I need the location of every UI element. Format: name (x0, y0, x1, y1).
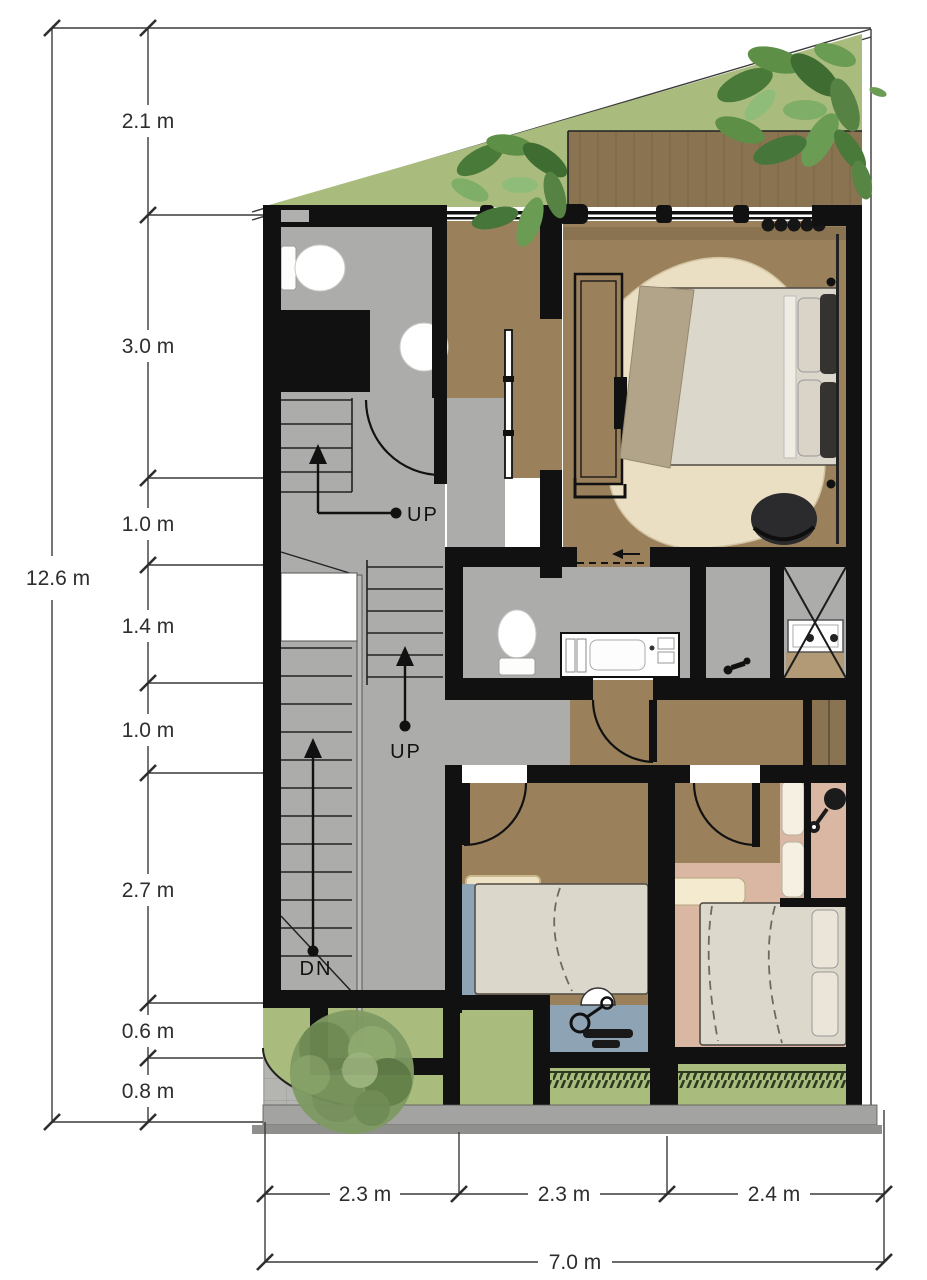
master-sheet-fold (784, 296, 796, 458)
shaft-wood (786, 652, 844, 678)
jamb-1 (540, 311, 562, 319)
leaf (502, 177, 538, 193)
pillow-light-2 (798, 380, 822, 456)
floor-plan-page: UP UP DN (0, 0, 927, 1280)
cushion-1 (782, 780, 804, 835)
wall-master-bottom-right (650, 547, 846, 567)
closet-knob-2 (827, 480, 836, 489)
desk-chair-icon (592, 1040, 620, 1048)
leaf (783, 100, 827, 120)
wall-bed4-top-a (675, 765, 690, 783)
wall-right-bottom-stub (846, 1047, 862, 1105)
door-master-hinge-2 (503, 430, 514, 436)
dim-left-seg-0: 2.1 m (122, 110, 175, 133)
dim-bottom-seg-2: 2.4 m (748, 1183, 801, 1206)
bed3 (475, 884, 648, 994)
door-bath1-leaf (434, 398, 447, 484)
door-bed4-leaf (752, 783, 760, 847)
dim-left-seg-4: 1.0 m (122, 719, 175, 742)
wall-bath2-bottom-left (445, 678, 593, 700)
window-post-3 (656, 205, 672, 223)
wall-left (263, 205, 281, 1008)
wall-wardrobe-bottom (780, 898, 846, 907)
door-master-hinge-1 (503, 376, 514, 382)
closet-front-line (836, 234, 839, 544)
desk-icon (583, 1029, 633, 1038)
doorway-floor (512, 317, 562, 478)
dim-left-seg-5: 2.7 m (122, 879, 175, 902)
wall-bed3-top-b (527, 765, 660, 783)
wall-closet-column (803, 690, 812, 775)
pillow-dark-2 (820, 382, 838, 458)
bed4-pillow-2 (812, 972, 838, 1036)
door-master-leaf (505, 330, 512, 478)
vanity-basin (590, 640, 645, 670)
wall-bath2-bottom-right (653, 678, 846, 700)
up-label-second: UP (390, 741, 422, 763)
hedge-hatch (550, 1072, 846, 1088)
wall-top-notch (281, 210, 309, 222)
wall-master-left-upper (540, 205, 562, 317)
bed4-pillow-1 (812, 910, 838, 968)
dim-left-seg-6: 0.6 m (122, 1020, 175, 1043)
hallway-floor (570, 700, 803, 765)
laundry-floor (706, 567, 770, 678)
bath2-door-gap-floor (593, 680, 653, 700)
dim-bottom-seg-0: 2.3 m (339, 1183, 392, 1206)
wall-master-bottom-left (445, 547, 577, 567)
floor-plan-canvas: UP UP DN (0, 0, 927, 1280)
toilet2-bowl (498, 610, 536, 658)
bedside-table (667, 878, 745, 905)
up-label-first: UP (407, 504, 439, 526)
wall-laundry-right (770, 567, 784, 678)
wall-bed4-bottom (675, 1047, 846, 1064)
wall-stairhall-bottom (263, 990, 447, 1008)
dim-left-total-label: 12.6 m (26, 567, 90, 590)
entry-garden-grass (460, 1005, 533, 1113)
closet-knob-1 (827, 278, 836, 287)
stair-void (281, 573, 357, 641)
down-label: DN (300, 958, 333, 980)
wall-nook-right-post (650, 1052, 678, 1112)
toilet2-tank (499, 658, 535, 675)
door-bath2-leaf (649, 700, 657, 762)
vanity-faucet (650, 646, 655, 651)
wall-right (846, 205, 862, 1068)
door-bed3-leaf (458, 783, 470, 845)
dim-left-seg-1: 3.0 m (122, 335, 175, 358)
pillow-dark-1 (820, 294, 838, 374)
stair-hall-floor (281, 398, 445, 990)
toilet1-bowl (295, 245, 345, 291)
hall-lower-gray (445, 700, 570, 765)
stair-handrail (357, 575, 362, 1045)
shower-block (281, 310, 370, 392)
wall-bath1-right (432, 224, 447, 398)
dim-left-seg-3: 1.4 m (122, 615, 175, 638)
pillow-light-1 (798, 298, 822, 372)
hall-pocket-floor (447, 398, 505, 547)
dim-left-seg-2: 1.0 m (122, 513, 175, 536)
wall-wardrobe-divider (804, 778, 811, 903)
jamb-2 (540, 470, 562, 478)
window-post-4 (733, 205, 749, 223)
dim-bottom-seg-1: 2.3 m (538, 1183, 591, 1206)
dim-left-seg-7: 0.8 m (122, 1080, 175, 1103)
shaft-dot-2 (830, 634, 838, 642)
wall-laundry-left (690, 567, 706, 678)
toilet1-tank (281, 246, 296, 290)
garden-tree (290, 1010, 414, 1134)
dim-bottom-total-label: 7.0 m (549, 1251, 602, 1274)
cushion-2 (782, 842, 804, 897)
wall-bed3-bed4 (648, 765, 675, 1068)
